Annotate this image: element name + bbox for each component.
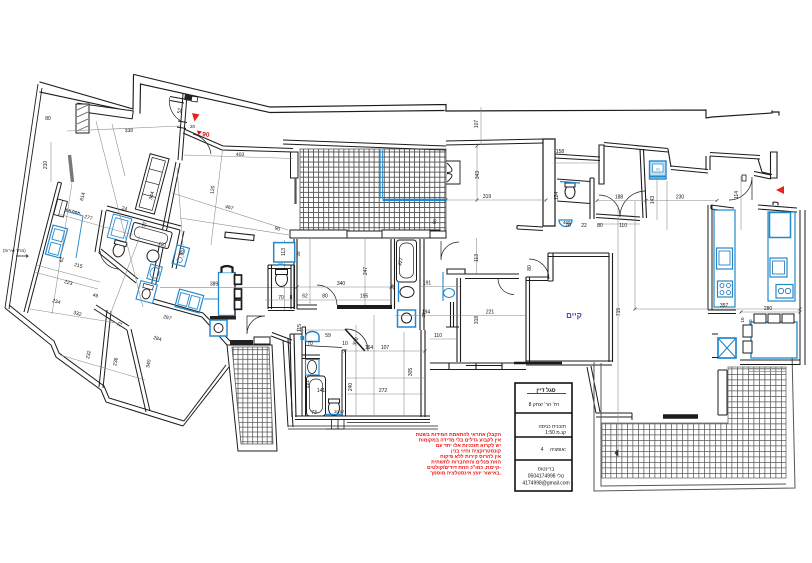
svg-text:114: 114 [734, 191, 740, 199]
svg-text:22: 22 [581, 223, 587, 229]
svg-text:59: 59 [325, 333, 331, 339]
svg-text:80: 80 [45, 116, 51, 122]
svg-text:143: 143 [650, 196, 656, 205]
svg-text:124: 124 [554, 192, 560, 201]
svg-text:8: 8 [290, 295, 293, 301]
svg-text:188: 188 [615, 195, 624, 201]
svg-text:222: 222 [305, 380, 311, 389]
svg-text:230: 230 [676, 195, 685, 201]
svg-text:90: 90 [202, 131, 211, 139]
svg-text:460: 460 [563, 220, 571, 225]
svg-text:113: 113 [281, 248, 287, 256]
svg-text:340: 340 [337, 281, 346, 287]
svg-text:30: 30 [390, 284, 395, 290]
svg-text:141: 141 [317, 388, 326, 394]
svg-text:715: 715 [616, 308, 622, 317]
svg-text:158: 158 [556, 149, 565, 155]
svg-text:קיים: קיים [566, 311, 582, 320]
svg-text:80: 80 [597, 223, 603, 229]
svg-text:338: 338 [125, 128, 134, 134]
svg-text:210: 210 [43, 161, 49, 170]
svg-text:20: 20 [190, 124, 196, 129]
svg-text:107: 107 [474, 120, 480, 129]
svg-text:ברינטוס: ברינטוס [538, 467, 555, 473]
svg-text:221: 221 [486, 310, 495, 316]
svg-text:191: 191 [423, 281, 432, 287]
svg-text:קנ.מ 1:50: קנ.מ 1:50 [545, 430, 566, 436]
svg-text:247: 247 [363, 267, 369, 276]
svg-text:4174998@gmail.com: 4174998@gmail.com [522, 481, 569, 487]
svg-text:80: 80 [322, 294, 328, 300]
svg-text:20: 20 [421, 312, 426, 318]
svg-text:30-17: 30-17 [334, 409, 345, 414]
svg-text:280: 280 [764, 306, 773, 312]
svg-text:164: 164 [365, 345, 374, 351]
svg-text:403: 403 [236, 152, 245, 158]
svg-text:(מרפ' שירות): (מרפ' שירות) [3, 248, 26, 253]
svg-text:107: 107 [381, 345, 390, 351]
svg-text:מז: מז [656, 168, 660, 172]
svg-text:באישור יועץ אינסטלציה מוסמך.: באישור יועץ אינסטלציה מוסמך. [430, 470, 501, 477]
svg-text:רח' הר' יצחק 8: רח' הר' יצחק 8 [529, 402, 560, 408]
svg-text:319: 319 [483, 194, 492, 200]
svg-text:אופציה:: אופציה: [550, 447, 566, 453]
svg-text:110: 110 [619, 223, 627, 229]
svg-text:115: 115 [297, 324, 303, 332]
svg-text:62: 62 [302, 294, 308, 300]
svg-text:70: 70 [278, 295, 284, 301]
svg-text:357: 357 [720, 303, 729, 309]
svg-text:80: 80 [527, 265, 533, 271]
svg-text:318: 318 [474, 316, 480, 325]
svg-text:4: 4 [541, 447, 544, 453]
svg-text:305: 305 [408, 368, 414, 377]
svg-text:120: 120 [210, 185, 217, 194]
svg-text:389: 389 [210, 282, 219, 288]
svg-text:110: 110 [434, 333, 442, 339]
svg-text:טלי 0504174998: טלי 0504174998 [528, 473, 564, 480]
svg-text:סגל דיין: סגל דיין [536, 387, 555, 394]
svg-text:10: 10 [342, 341, 348, 347]
svg-text:20: 20 [296, 251, 301, 257]
svg-text:10: 10 [740, 317, 745, 323]
svg-text:73: 73 [311, 410, 317, 416]
svg-text:343: 343 [475, 171, 481, 180]
svg-text:195: 195 [360, 294, 369, 300]
svg-text:70: 70 [307, 341, 313, 347]
svg-text:272: 272 [379, 388, 388, 394]
svg-text:113: 113 [474, 254, 480, 262]
svg-text:240: 240 [348, 383, 354, 392]
